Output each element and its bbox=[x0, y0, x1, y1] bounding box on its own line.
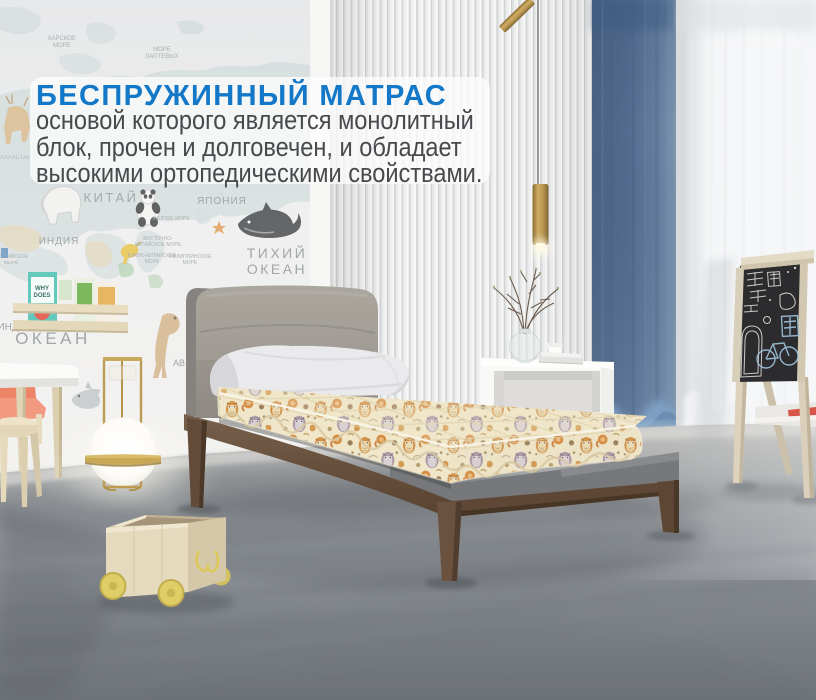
svg-text:ЖЕЛТОЕ МОРЕ: ЖЕЛТОЕ МОРЕ bbox=[152, 216, 190, 222]
svg-text:АВ: АВ bbox=[173, 358, 185, 368]
svg-text:WHY: WHY bbox=[35, 286, 49, 292]
svg-text:ТИХИЙ: ТИХИЙ bbox=[247, 244, 308, 261]
svg-text:ЛАПТЕВЫХ: ЛАПТЕВЫХ bbox=[145, 54, 178, 60]
svg-text:КИТАЙСКОЕ МОРЕ: КИТАЙСКОЕ МОРЕ bbox=[135, 240, 182, 248]
svg-text:DOES: DOES bbox=[33, 293, 50, 299]
svg-text:ОКЕАН: ОКЕАН bbox=[247, 261, 307, 277]
svg-text:КИТАЙ: КИТАЙ bbox=[84, 190, 139, 205]
svg-text:КАЗАХСТАН: КАЗАХСТАН bbox=[0, 155, 31, 161]
svg-text:МОРЕ: МОРЕ bbox=[145, 259, 160, 265]
svg-text:ЯПОНИЯ: ЯПОНИЯ bbox=[197, 196, 247, 207]
svg-text:КАРСКОЕ: КАРСКОЕ bbox=[48, 36, 76, 42]
svg-text:МОРЕ: МОРЕ bbox=[183, 260, 198, 266]
svg-text:МОРЕ: МОРЕ bbox=[153, 47, 171, 53]
svg-text:МОРЕ: МОРЕ bbox=[53, 43, 71, 49]
svg-text:ИНДИЯ: ИНДИЯ bbox=[39, 236, 80, 247]
